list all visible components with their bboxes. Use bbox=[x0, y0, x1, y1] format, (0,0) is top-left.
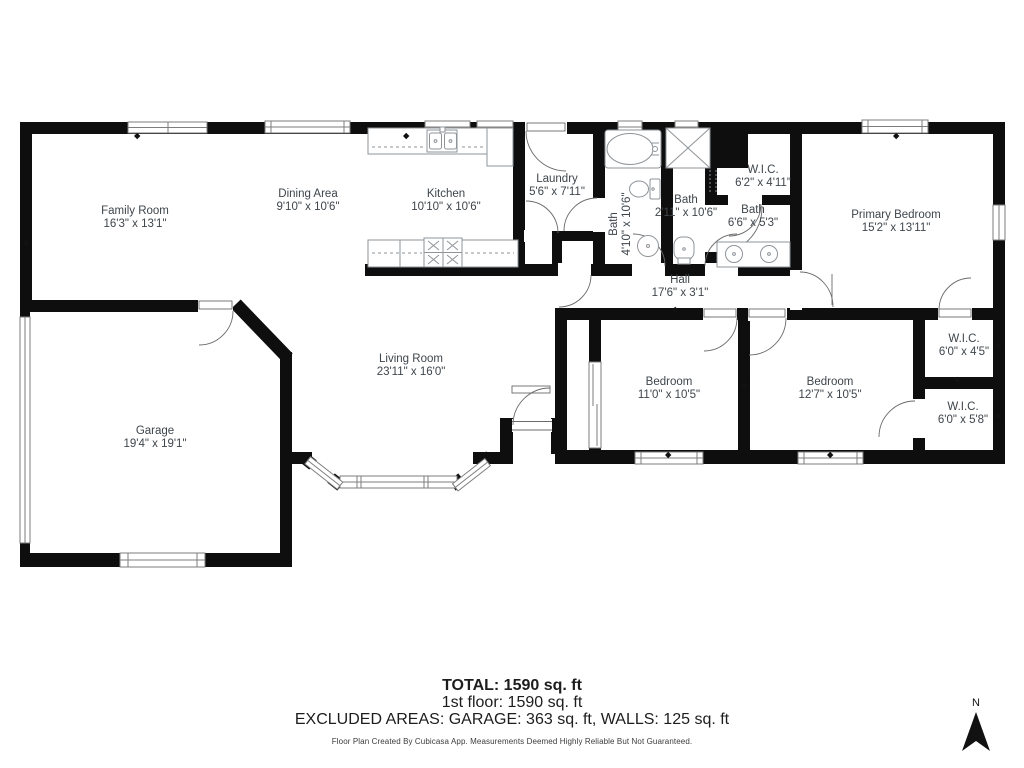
room-name: Dining Area bbox=[276, 188, 339, 201]
laundry-closet-door-arc bbox=[526, 201, 558, 233]
room-dims: 6'0" x 4'5" bbox=[939, 346, 989, 359]
window-dining-top bbox=[265, 121, 350, 133]
room-label-bath-3: Bath 6'6" x 5'3" bbox=[728, 204, 778, 230]
room-label-bedroom-1: Bedroom 11'0" x 10'5" bbox=[638, 376, 700, 402]
room-name: Family Room bbox=[101, 205, 169, 218]
room-dims: 19'4" x 19'1" bbox=[123, 438, 186, 451]
shower bbox=[666, 128, 710, 168]
room-dims: 17'6" x 3'1" bbox=[652, 287, 709, 300]
room-dims: 4'10" x 10'6" bbox=[621, 192, 634, 255]
room-dims: 5'6" x 7'11" bbox=[529, 186, 585, 199]
primary-wic-door-arc bbox=[939, 278, 971, 310]
room-dims: 23'11" x 16'0" bbox=[377, 366, 446, 379]
sliding-closet-door bbox=[589, 362, 601, 448]
solid-void bbox=[710, 128, 748, 168]
north-arrow-icon: N bbox=[952, 692, 1000, 762]
room-dims: 16'3" x 13'1" bbox=[101, 218, 169, 231]
room-label-bath-2: Bath 2'11" x 10'6" bbox=[655, 194, 717, 220]
room-name: W.I.C. bbox=[938, 401, 988, 414]
room-dims: 6'2" x 4'11" bbox=[735, 177, 791, 190]
room-name: W.I.C. bbox=[939, 333, 989, 346]
bathtub bbox=[605, 130, 661, 168]
room-name: Garage bbox=[123, 425, 186, 438]
room-label-hall: Hall 17'6" x 3'1" bbox=[652, 274, 709, 300]
room-label-laundry: Laundry 5'6" x 7'11" bbox=[529, 173, 585, 199]
windows bbox=[20, 120, 1005, 567]
room-label-garage: Garage 19'4" x 19'1" bbox=[123, 425, 186, 451]
excluded-areas-text: EXCLUDED AREAS: GARAGE: 363 sq. ft, WALL… bbox=[0, 712, 1024, 729]
vanity-bath3 bbox=[717, 242, 790, 267]
room-name: Hall bbox=[652, 274, 709, 287]
room-dims: 9'10" x 10'6" bbox=[276, 201, 339, 214]
bedroom1-door-arc bbox=[704, 318, 737, 351]
window-primary-right bbox=[993, 205, 1005, 240]
room-label-bedroom-2: Bedroom 12'7" x 10'5" bbox=[798, 376, 861, 402]
room-label-wic-3: W.I.C. 6'0" x 5'8" bbox=[938, 401, 988, 427]
window-primary-top bbox=[862, 120, 928, 133]
north-label: N bbox=[972, 697, 980, 709]
dimension-ticks bbox=[23, 133, 1001, 458]
room-label-wic-2: W.I.C. 6'0" x 4'5" bbox=[939, 333, 989, 359]
hall-closet-door-arc bbox=[559, 275, 591, 307]
window-bay-center bbox=[340, 476, 457, 488]
north-compass: N bbox=[952, 692, 1000, 762]
room-dims: 12'7" x 10'5" bbox=[798, 389, 861, 402]
disclaimer-text: Floor Plan Created By Cubicasa App. Meas… bbox=[0, 737, 1024, 746]
refrigerator bbox=[487, 128, 513, 166]
room-name: Bedroom bbox=[638, 376, 700, 389]
window-family-top bbox=[128, 122, 207, 133]
room-label-living-room: Living Room 23'11" x 16'0" bbox=[377, 353, 446, 379]
exterior-walls bbox=[20, 122, 1005, 567]
window-bay-left bbox=[305, 457, 343, 489]
laundry-exterior-door-arc bbox=[526, 131, 566, 171]
room-dims: 6'0" x 5'8" bbox=[938, 414, 988, 427]
room-name: Bath bbox=[608, 192, 621, 255]
room-name: Bath bbox=[728, 204, 778, 217]
window-garage-left bbox=[20, 317, 30, 543]
room-name: Living Room bbox=[377, 353, 446, 366]
sink-bath1 bbox=[638, 236, 659, 257]
room-name: Primary Bedroom bbox=[851, 209, 940, 222]
room-label-family-room: Family Room 16'3" x 13'1" bbox=[101, 205, 169, 231]
stove bbox=[424, 238, 462, 267]
room-dims: 11'0" x 10'5" bbox=[638, 389, 700, 402]
kitchen-sink bbox=[427, 127, 457, 152]
room-label-dining-area: Dining Area 9'10" x 10'6" bbox=[276, 188, 339, 214]
first-floor-area-text: 1st floor: 1590 sq. ft bbox=[0, 695, 1024, 712]
room-name: W.I.C. bbox=[735, 164, 791, 177]
summary-footer: TOTAL: 1590 sq. ft 1st floor: 1590 sq. f… bbox=[0, 678, 1024, 746]
room-dims: 15'2" x 13'11" bbox=[851, 222, 940, 235]
bedroom2-door-arc bbox=[749, 318, 786, 355]
room-label-bath-1: Bath 4'10" x 10'6" bbox=[608, 192, 634, 255]
hall-primary-door-arc bbox=[800, 272, 833, 307]
floor-plan-page: Family Room 16'3" x 13'1" Dining Area 9'… bbox=[0, 0, 1024, 768]
room-dims: 10'10" x 10'6" bbox=[411, 201, 480, 214]
pedestal-sink-bath2 bbox=[674, 237, 694, 264]
room-name: Laundry bbox=[529, 173, 585, 186]
laundry-bath-door-arc bbox=[564, 198, 597, 231]
bedroom2-wic-door-arc bbox=[879, 401, 915, 437]
window-garage-bottom bbox=[120, 553, 205, 567]
room-dims: 2'11" x 10'6" bbox=[655, 207, 717, 220]
room-name: Bedroom bbox=[798, 376, 861, 389]
total-area-text: TOTAL: 1590 sq. ft bbox=[0, 678, 1024, 695]
room-label-primary-bedroom: Primary Bedroom 15'2" x 13'11" bbox=[851, 209, 940, 235]
room-label-wic-1: W.I.C. 6'2" x 4'11" bbox=[735, 164, 791, 190]
floor-plan-drawing bbox=[0, 0, 1024, 768]
garage-door-arc bbox=[199, 311, 233, 345]
room-name: Bath bbox=[655, 194, 717, 207]
room-name: Kitchen bbox=[411, 188, 480, 201]
room-dims: 6'6" x 5'3" bbox=[728, 217, 778, 230]
room-label-kitchen: Kitchen 10'10" x 10'6" bbox=[411, 188, 480, 214]
